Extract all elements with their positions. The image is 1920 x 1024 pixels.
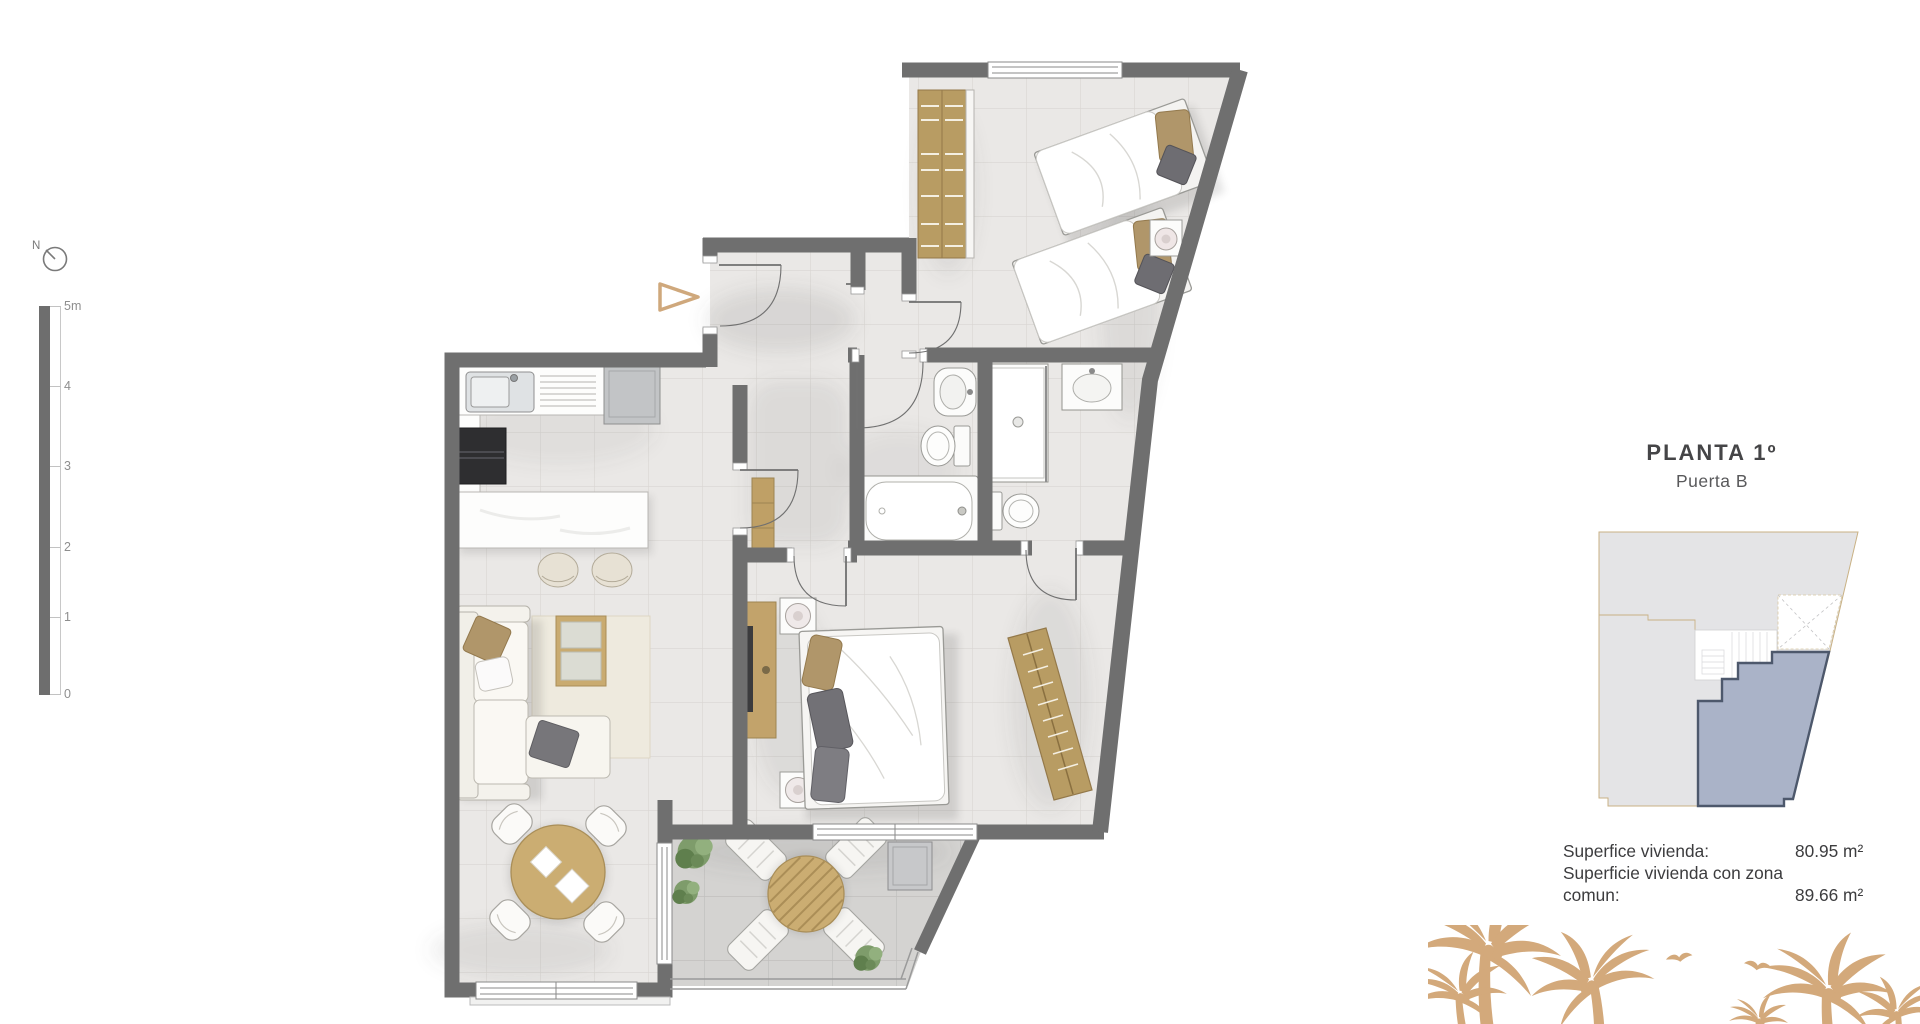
scale-label-1: 1 [64,610,94,624]
key-plan [1580,520,1860,812]
kitchen-island [456,492,652,554]
north-compass: N [24,234,84,282]
area-value: 80.95 m² [1795,840,1913,862]
area-table: Superfice vivienda: 80.95 m² Superficie … [1563,840,1913,906]
scale-label-0: 0 [64,687,94,701]
compass-needle [46,250,55,259]
entrance-arrow [660,284,698,310]
scale-label-3: 3 [64,459,94,473]
hall-cabinet [752,478,774,552]
toilet [988,492,1039,530]
tv-unit [744,602,776,738]
north-label: N [32,240,40,252]
area-row: Superfice vivienda: 80.95 m² [1563,840,1913,862]
page-subtitle: Puerta B [1592,471,1832,492]
area-value: 89.66 m² [1795,884,1913,906]
scale-bar-rule [39,306,50,695]
palm-decoration [1428,925,1920,1024]
window-master [813,824,977,840]
bathtub [860,476,978,546]
wardrobe [918,90,974,258]
double-bed [799,626,949,809]
shower [988,364,1048,482]
scale-bar-line [60,306,61,695]
page-title: PLANTA 1º [1592,440,1832,466]
area-row: Superficie vivienda con zona comun: 89.6… [1563,862,1913,906]
floor-plan-canvas [0,0,1280,1024]
scale-label-5m: 5m [64,299,94,313]
area-label: Superfice vivienda: [1563,840,1795,862]
window-top [988,62,1122,78]
toilet [921,426,970,466]
scale-bar: 5m 4 3 2 1 0 [36,298,96,710]
kitchen-appliance [604,366,660,424]
title-block: PLANTA 1º Puerta B [1592,440,1832,492]
window-terrace-door [657,843,672,964]
scale-label-4: 4 [64,379,94,393]
ac-unit [888,842,932,890]
washbasin [1062,364,1122,410]
area-label: Superficie vivienda con zona comun: [1563,862,1795,906]
nightstand [1150,220,1182,256]
oven [456,428,506,484]
washbasin [934,368,976,416]
coffee-table [556,616,606,686]
nightstand [780,598,816,634]
scale-label-2: 2 [64,540,94,554]
